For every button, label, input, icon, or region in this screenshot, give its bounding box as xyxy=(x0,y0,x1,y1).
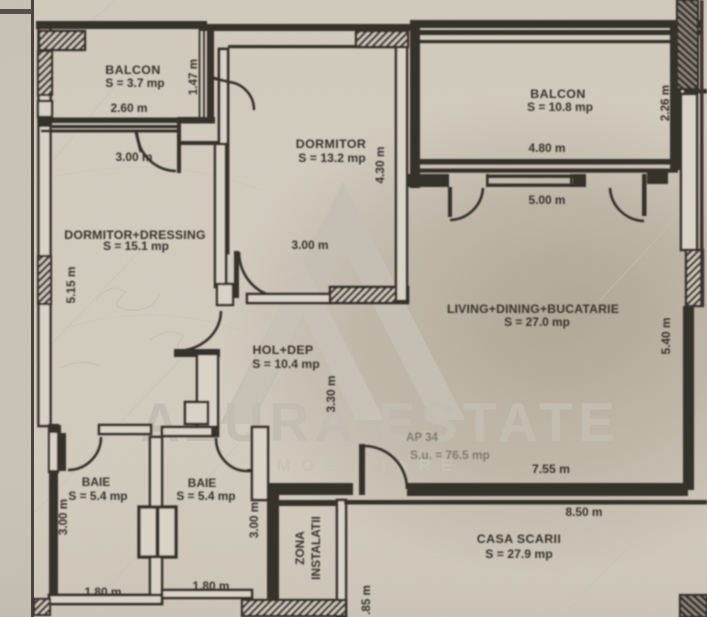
svg-text:1.47 m: 1.47 m xyxy=(187,59,200,95)
svg-text:2.26 m: 2.26 m xyxy=(659,85,672,121)
svg-text:4.80 m: 4.80 m xyxy=(528,141,565,155)
svg-text:DORMITOR: DORMITOR xyxy=(296,137,366,151)
svg-text:S = 27.9 mp: S = 27.9 mp xyxy=(485,547,552,561)
svg-text:3.00 m: 3.00 m xyxy=(115,150,152,164)
svg-text:3.00 m: 3.00 m xyxy=(57,499,70,535)
svg-text:S = 3.7 mp: S = 3.7 mp xyxy=(105,76,164,90)
svg-text:LIVING+DINING+BUCATARIE: LIVING+DINING+BUCATARIE xyxy=(447,302,619,316)
svg-text:BALCON: BALCON xyxy=(530,87,585,101)
svg-text:8.50 m: 8.50 m xyxy=(565,505,602,519)
svg-text:3.30 m: 3.30 m xyxy=(324,375,338,412)
svg-text:HOL+DEP: HOL+DEP xyxy=(253,343,314,357)
svg-text:5.40 m: 5.40 m xyxy=(659,317,673,354)
svg-text:4.30 m: 4.30 m xyxy=(373,146,387,183)
svg-text:S = 27.0 mp: S = 27.0 mp xyxy=(504,315,570,329)
svg-text:5.00 m: 5.00 m xyxy=(528,193,565,207)
svg-text:.85 m: .85 m xyxy=(360,585,373,615)
svg-text:ZONA: ZONA xyxy=(293,531,307,565)
svg-text:7.55 m: 7.55 m xyxy=(532,462,570,476)
svg-text:BALCON: BALCON xyxy=(105,63,160,77)
svg-text:5.15 m: 5.15 m xyxy=(64,266,78,303)
svg-text:2.60 m: 2.60 m xyxy=(110,101,147,115)
svg-text:INSTALATII: INSTALATII xyxy=(309,516,323,580)
svg-text:3.00 m: 3.00 m xyxy=(291,238,328,252)
svg-text:CASA SCARII: CASA SCARII xyxy=(477,532,562,546)
svg-text:S.u. = 76.5 mp: S.u. = 76.5 mp xyxy=(410,448,490,462)
svg-text:1.80 m: 1.80 m xyxy=(84,585,121,599)
svg-text:BAIE: BAIE xyxy=(82,475,110,489)
svg-text:1.80 m: 1.80 m xyxy=(192,579,229,593)
svg-text:S = 10.8 mp: S = 10.8 mp xyxy=(527,100,593,114)
svg-text:AP 34: AP 34 xyxy=(406,431,439,444)
svg-text:3.00 m: 3.00 m xyxy=(248,502,261,538)
svg-text:S = 10.4 mp: S = 10.4 mp xyxy=(252,357,319,371)
svg-text:S = 5.4 mp: S = 5.4 mp xyxy=(176,489,235,503)
svg-text:BAIE: BAIE xyxy=(188,476,216,490)
svg-text:S = 13.2 mp: S = 13.2 mp xyxy=(298,151,365,165)
svg-text:S = 5.4 mp: S = 5.4 mp xyxy=(68,489,127,503)
svg-text:S = 15.1 mp: S = 15.1 mp xyxy=(103,239,169,253)
